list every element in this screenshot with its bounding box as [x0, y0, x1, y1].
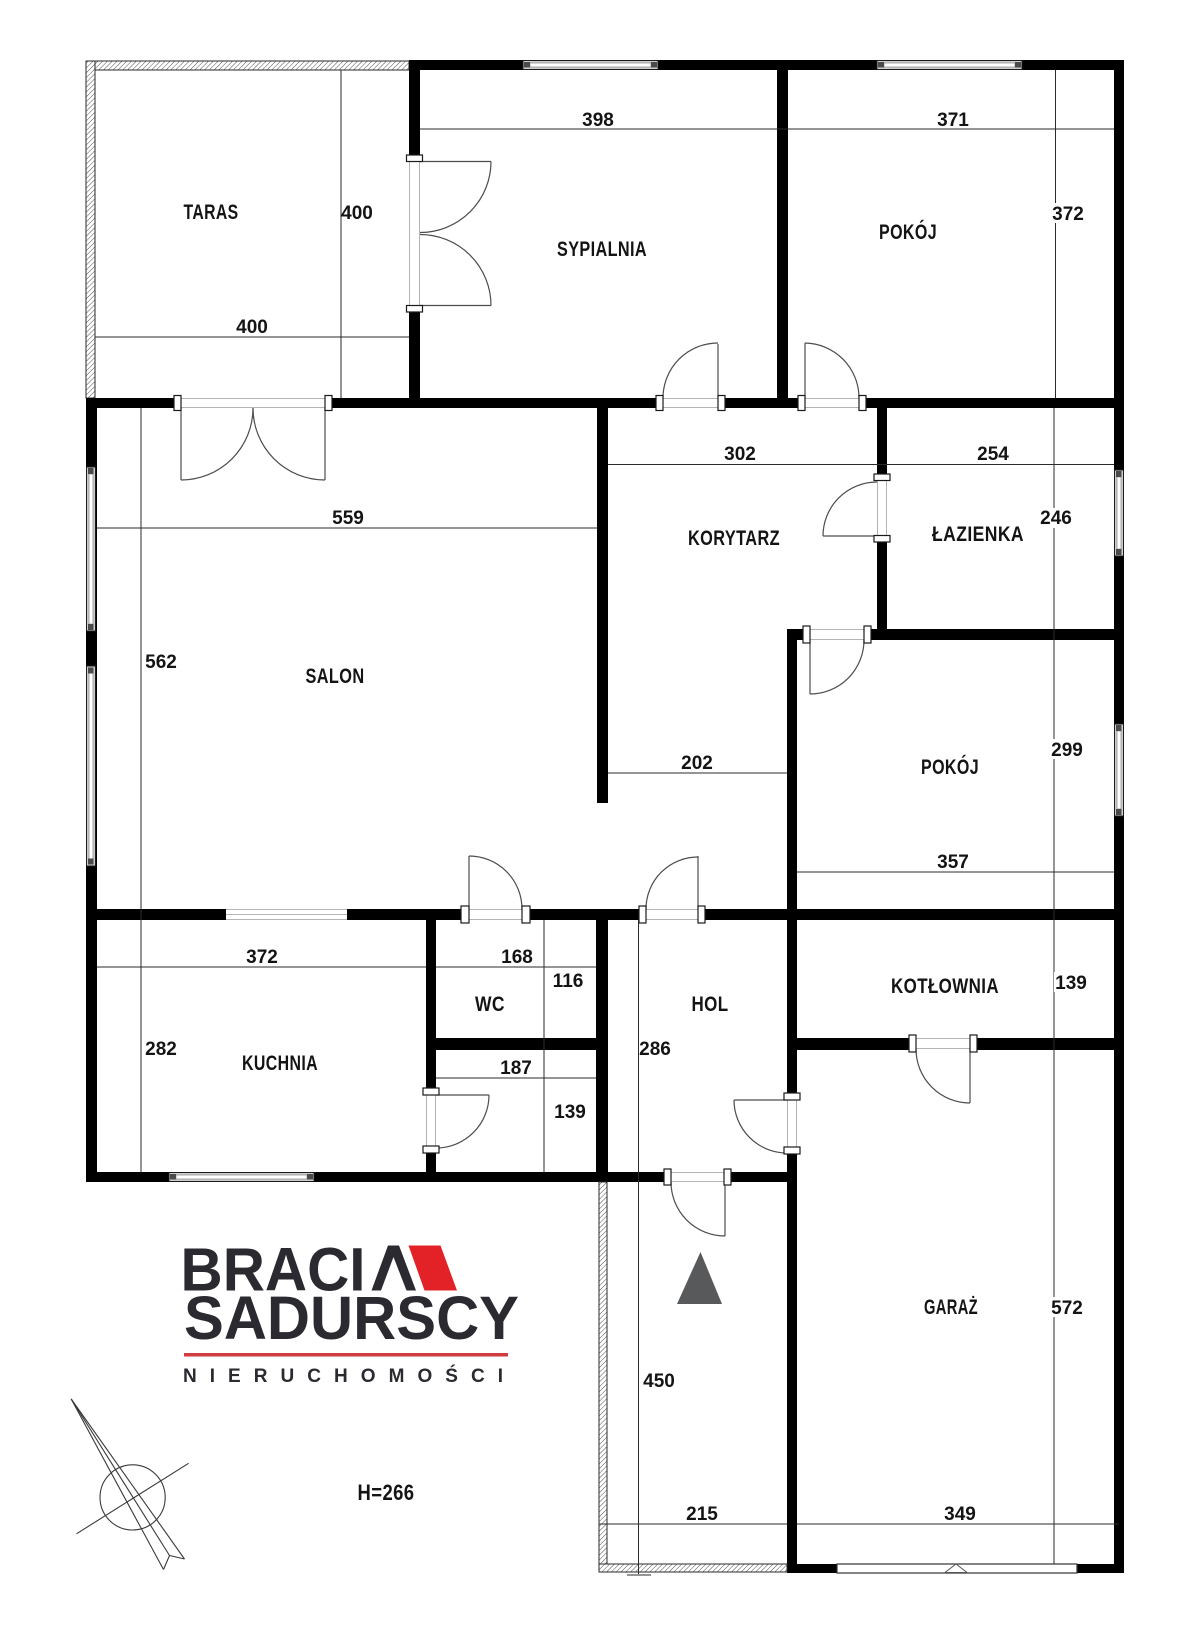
svg-text:NIERUCHOMOŚCI: NIERUCHOMOŚCI: [183, 1365, 503, 1387]
svg-text:572: 572: [1051, 1298, 1083, 1319]
svg-text:299: 299: [1051, 740, 1083, 761]
svg-text:254: 254: [977, 444, 1009, 465]
svg-text:400: 400: [236, 317, 268, 338]
svg-text:400: 400: [341, 203, 373, 224]
svg-text:SALON: SALON: [306, 665, 365, 688]
svg-text:139: 139: [1055, 973, 1087, 994]
svg-text:ŁAZIENKA: ŁAZIENKA: [932, 523, 1024, 546]
svg-text:GARAŻ: GARAŻ: [924, 1296, 978, 1319]
svg-text:349: 349: [944, 1504, 976, 1525]
svg-text:KORYTARZ: KORYTARZ: [688, 527, 780, 550]
svg-text:202: 202: [681, 753, 713, 774]
svg-text:357: 357: [937, 852, 969, 873]
svg-text:215: 215: [686, 1504, 718, 1525]
svg-text:168: 168: [501, 947, 533, 968]
svg-text:H=266: H=266: [358, 1480, 415, 1505]
svg-text:246: 246: [1040, 508, 1072, 529]
svg-text:282: 282: [145, 1039, 177, 1060]
svg-text:286: 286: [639, 1039, 671, 1060]
svg-text:450: 450: [643, 1371, 675, 1392]
svg-text:HOL: HOL: [692, 993, 729, 1016]
svg-text:SADURSCY: SADURSCY: [184, 1284, 519, 1352]
svg-text:KOTŁOWNIA: KOTŁOWNIA: [891, 975, 999, 998]
svg-text:372: 372: [1052, 204, 1084, 225]
svg-text:371: 371: [937, 110, 969, 131]
svg-text:187: 187: [500, 1058, 532, 1079]
svg-text:WC: WC: [475, 993, 505, 1016]
svg-text:POKÓJ: POKÓJ: [879, 220, 937, 244]
svg-text:302: 302: [724, 444, 756, 465]
svg-text:562: 562: [145, 652, 177, 673]
svg-text:POKÓJ: POKÓJ: [921, 755, 979, 779]
svg-text:TARAS: TARAS: [184, 201, 239, 224]
svg-text:372: 372: [246, 947, 278, 968]
svg-text:559: 559: [332, 508, 364, 529]
svg-text:398: 398: [582, 110, 614, 131]
svg-text:116: 116: [553, 971, 584, 992]
svg-text:SYPIALNIA: SYPIALNIA: [557, 238, 647, 261]
svg-text:139: 139: [554, 1102, 586, 1123]
svg-text:KUCHNIA: KUCHNIA: [242, 1052, 318, 1075]
